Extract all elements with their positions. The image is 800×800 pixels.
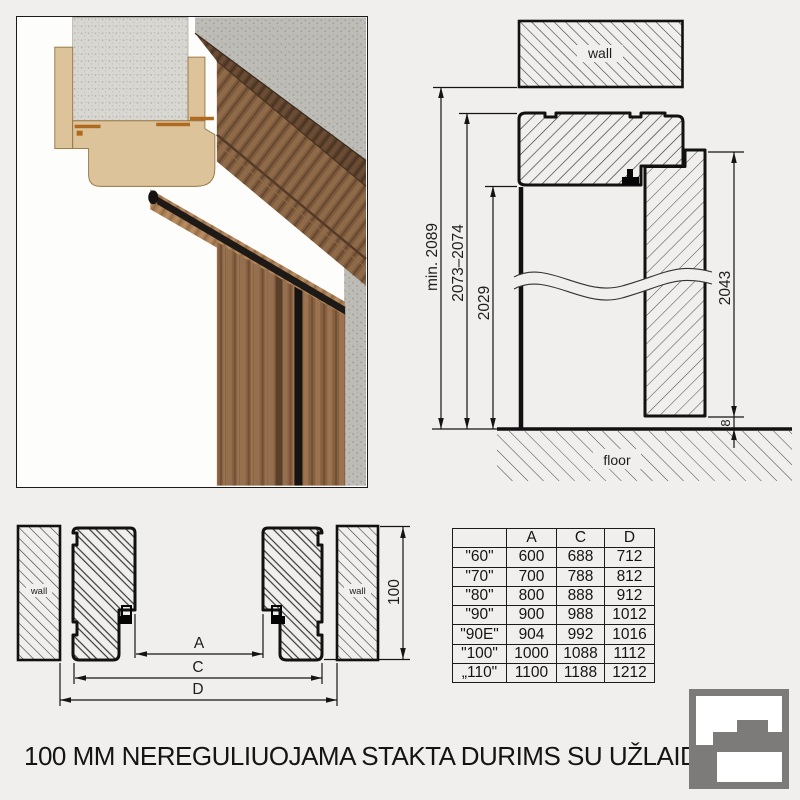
- dim-depth-label: 100: [386, 579, 403, 605]
- dim-floor-gap: 8: [718, 419, 733, 426]
- mdf-right-leg: [188, 57, 205, 121]
- floor-label: floor: [603, 452, 631, 468]
- wall-left-label: wall: [30, 586, 47, 597]
- table-cell: "70": [453, 567, 507, 586]
- plan-section-drawing: wall wall A C D 100: [0, 505, 440, 720]
- table-cell: 600: [507, 548, 557, 567]
- table-cell: "100": [453, 644, 507, 663]
- table-header-cell: A: [507, 529, 557, 548]
- dim-door-height: 2043: [717, 271, 734, 305]
- size-table: A C D "60" 600 688 712 "70" 700 788 812 …: [452, 528, 655, 683]
- table-cell: 688: [557, 548, 605, 567]
- mdf-bottom-block: [73, 121, 215, 187]
- table-cell: 1212: [605, 664, 655, 683]
- table-cell: 700: [507, 567, 557, 586]
- frame-profile-right: [263, 528, 322, 660]
- table-row: "100" 1000 1088 1112: [453, 644, 655, 663]
- logo-foot-shape: [696, 745, 717, 782]
- dim-c-label: C: [192, 659, 203, 676]
- table-header-cell: D: [605, 529, 655, 548]
- table-row: "90E" 904 992 1016: [453, 625, 655, 644]
- table-cell: „110": [453, 664, 507, 683]
- frame-profile-left: [73, 528, 135, 660]
- seal-end-cap: [148, 190, 158, 204]
- mdf-left-leg: [55, 47, 73, 148]
- table-row: „110" 1100 1188 1212: [453, 664, 655, 683]
- table-cell: 712: [605, 548, 655, 567]
- dim-opening-height: 2029: [476, 286, 493, 320]
- frame-right-seal: [271, 616, 285, 624]
- table-cell: 1088: [557, 644, 605, 663]
- table-cell: 1112: [605, 644, 655, 663]
- table-cell: 904: [507, 625, 557, 644]
- table-cell: 900: [507, 606, 557, 625]
- wall-label: wall: [587, 45, 612, 61]
- concrete-slab-face: [73, 17, 188, 120]
- table-cell: 888: [557, 586, 605, 605]
- dim-total-height: min. 2089: [424, 223, 441, 291]
- table-row: "60" 600 688 712: [453, 548, 655, 567]
- table-cell: 812: [605, 567, 655, 586]
- table-cell: 1188: [557, 664, 605, 683]
- table-cell: 912: [605, 586, 655, 605]
- frame-corner-3d-scene: [17, 17, 367, 487]
- elevation-drawing: wall floor min. 2089 2073–2074 2029 204: [420, 0, 800, 500]
- brand-logo: [689, 689, 789, 789]
- table-header-cell: [453, 529, 507, 548]
- logo-bar-shape: [713, 732, 782, 752]
- table-cell: 1016: [605, 625, 655, 644]
- logo-step-shape: [737, 720, 768, 732]
- table-row: "70" 700 788 812: [453, 567, 655, 586]
- table-cell: "80": [453, 586, 507, 605]
- size-table-wrap: A C D "60" 600 688 712 "70" 700 788 812 …: [452, 528, 654, 683]
- table-cell: 788: [557, 567, 605, 586]
- jamb-seal: [294, 271, 302, 487]
- table-cell: "60": [453, 548, 507, 567]
- table-cell: 988: [557, 606, 605, 625]
- floor-hatch: [497, 431, 792, 481]
- table-cell: 1100: [507, 664, 557, 683]
- table-row: "80" 800 888 912: [453, 586, 655, 605]
- table-header-row: A C D: [453, 529, 655, 548]
- table-cell: "90": [453, 606, 507, 625]
- frame-left-seal: [118, 616, 132, 624]
- dim-a-label: A: [194, 635, 205, 652]
- dim-d-label: D: [192, 681, 203, 698]
- wall-right-label: wall: [348, 586, 365, 597]
- table-cell: 1012: [605, 606, 655, 625]
- table-row: "90" 900 988 1012: [453, 606, 655, 625]
- page-title: 100 MM NEREGULIUOJAMA STAKTA DURIMS SU U…: [24, 741, 715, 772]
- table-cell: 992: [557, 625, 605, 644]
- table-cell: "90E": [453, 625, 507, 644]
- table-cell: 800: [507, 586, 557, 605]
- dim-frame-height: 2073–2074: [450, 224, 467, 302]
- table-header-cell: C: [557, 529, 605, 548]
- jamb-groove: [276, 266, 283, 487]
- table-cell: 1000: [507, 644, 557, 663]
- frame-corner-3d-photo: [16, 16, 368, 488]
